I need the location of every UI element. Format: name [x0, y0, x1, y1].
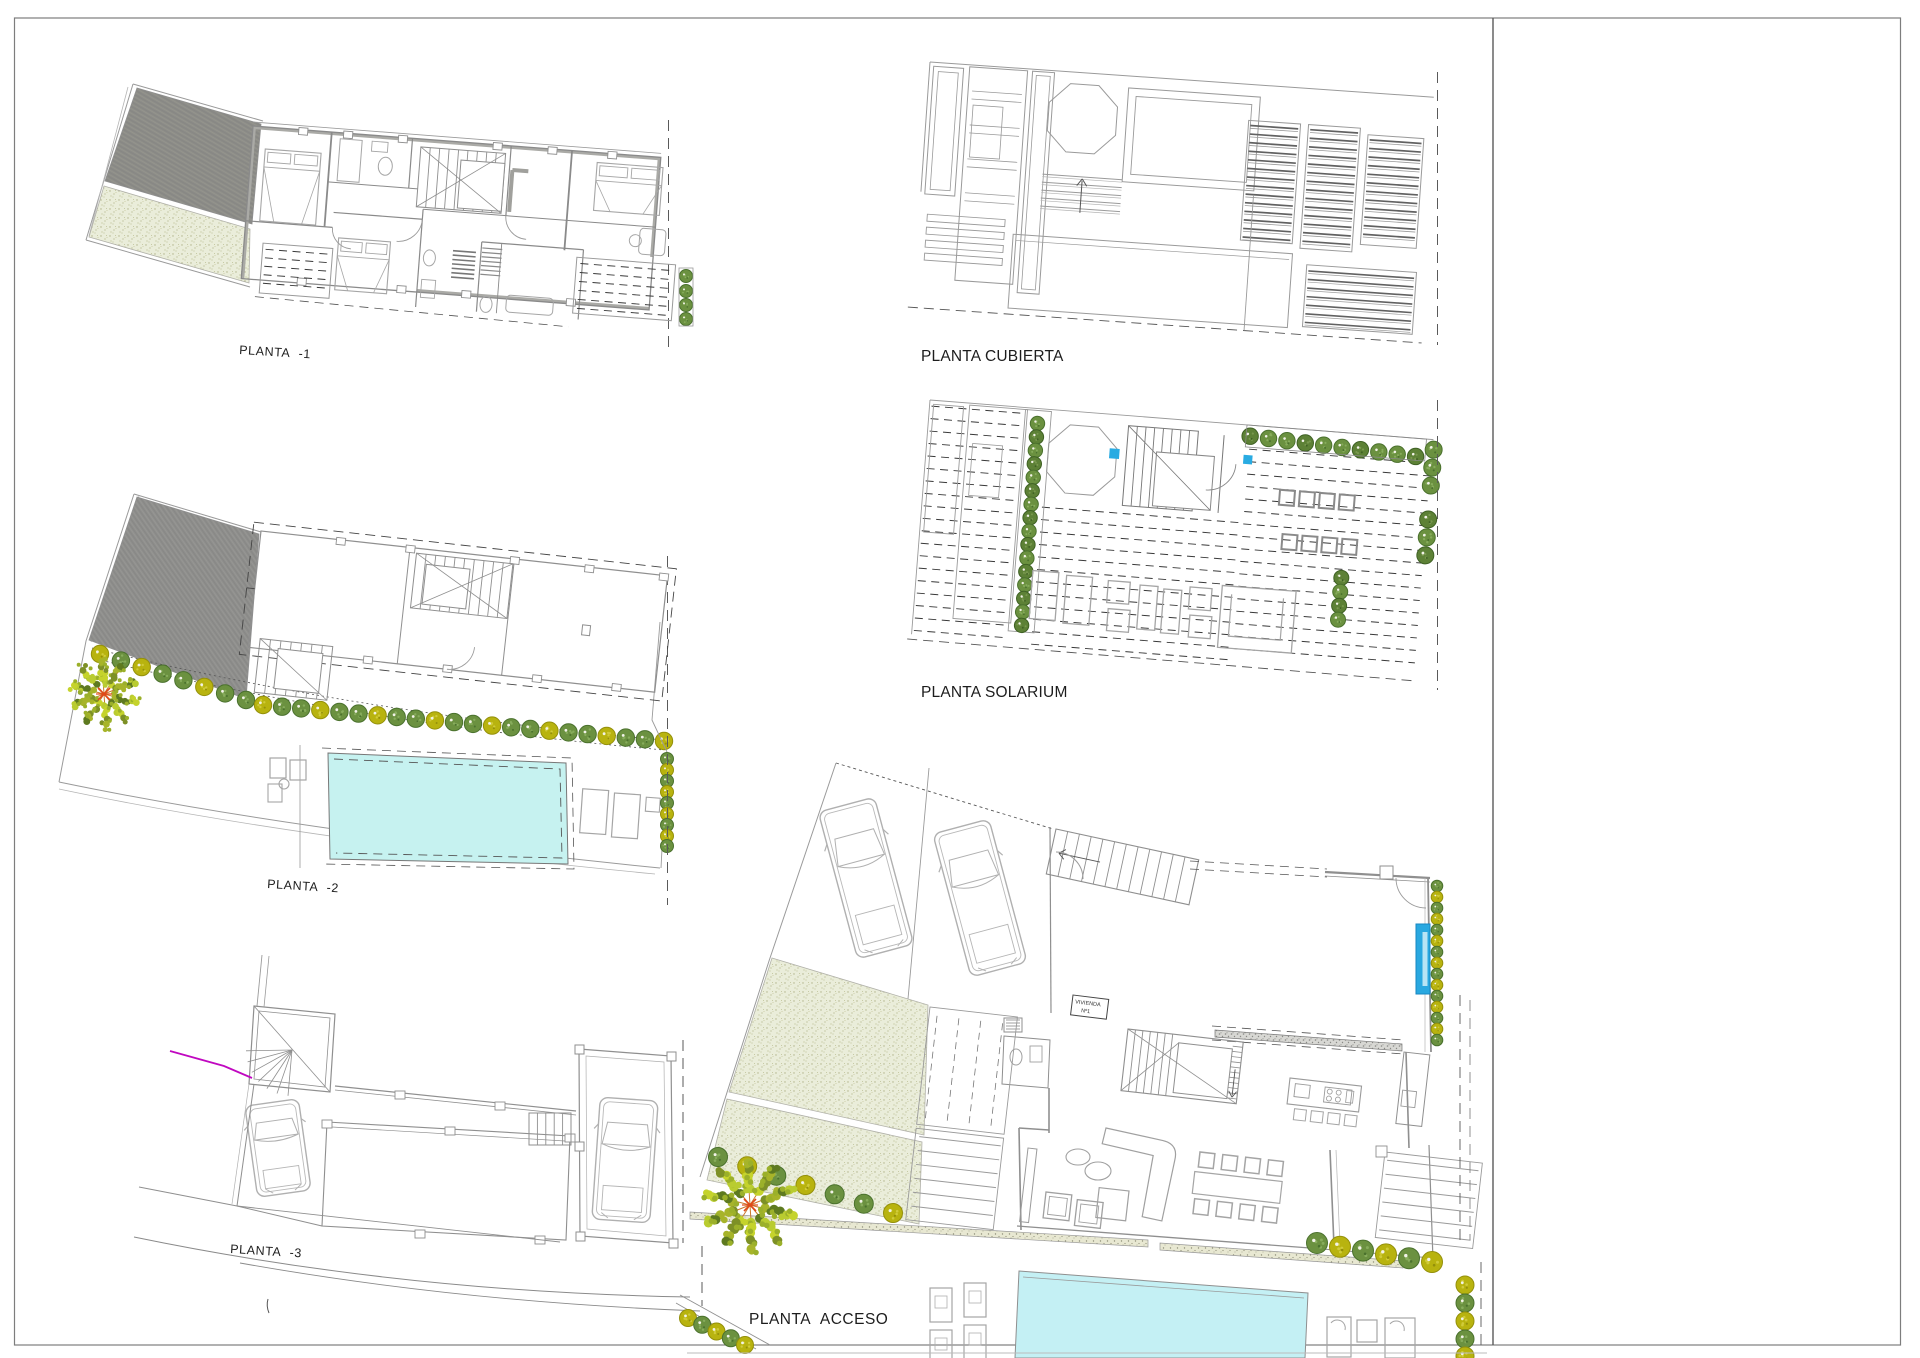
svg-text:PLANTA SOLARIUM: PLANTA SOLARIUM	[921, 684, 1068, 701]
svg-text:PLANTA ACCESO: PLANTA ACCESO	[749, 1311, 888, 1328]
svg-text:PLANTA CUBIERTA: PLANTA CUBIERTA	[921, 348, 1064, 365]
svg-text:Nº1: Nº1	[1081, 1007, 1091, 1015]
